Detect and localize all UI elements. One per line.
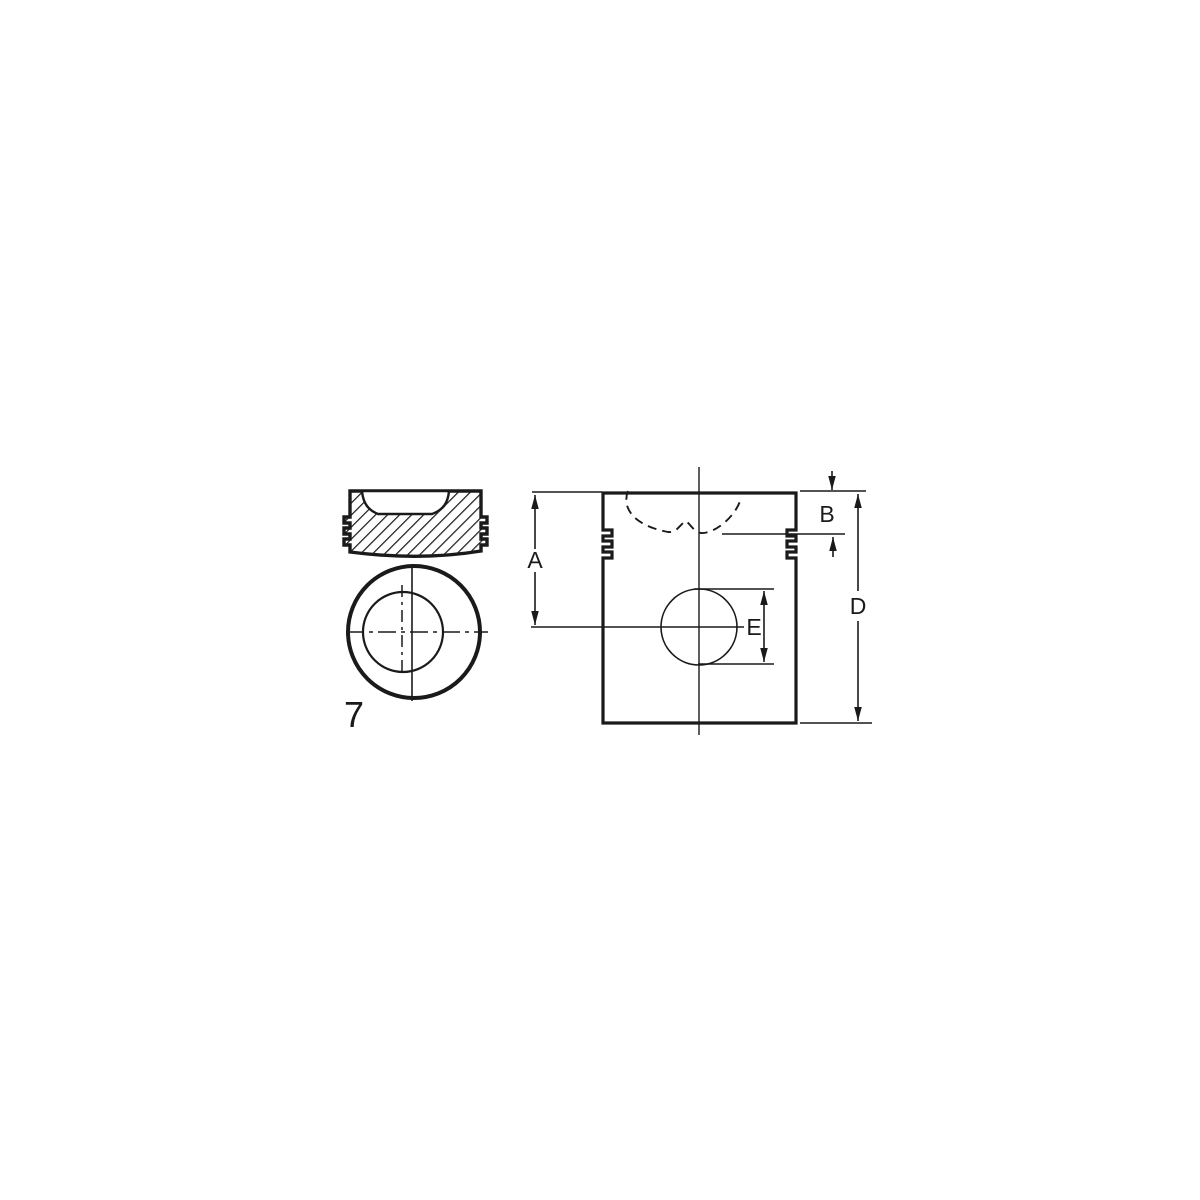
- combustion-bowl-hidden-line: [626, 491, 741, 533]
- piston-crown-section-view: [344, 491, 487, 556]
- piston-top-view: [346, 564, 488, 701]
- dimension-a-label: A: [527, 547, 543, 573]
- piston-dimension-diagram-page: 7 A B D: [0, 0, 1200, 1200]
- combustion-bowl-section: [362, 491, 449, 514]
- dimension-e-label: E: [746, 614, 761, 640]
- dimension-d: D: [800, 491, 872, 723]
- dimension-b-label: B: [819, 501, 834, 527]
- dimension-a: A: [527, 492, 602, 625]
- dimension-b: B: [722, 471, 845, 557]
- dimension-d-label: D: [850, 593, 867, 619]
- figure-number-label: 7: [344, 694, 364, 735]
- piston-dimension-diagram: 7 A B D: [0, 0, 1200, 1200]
- piston-side-view: [531, 467, 796, 735]
